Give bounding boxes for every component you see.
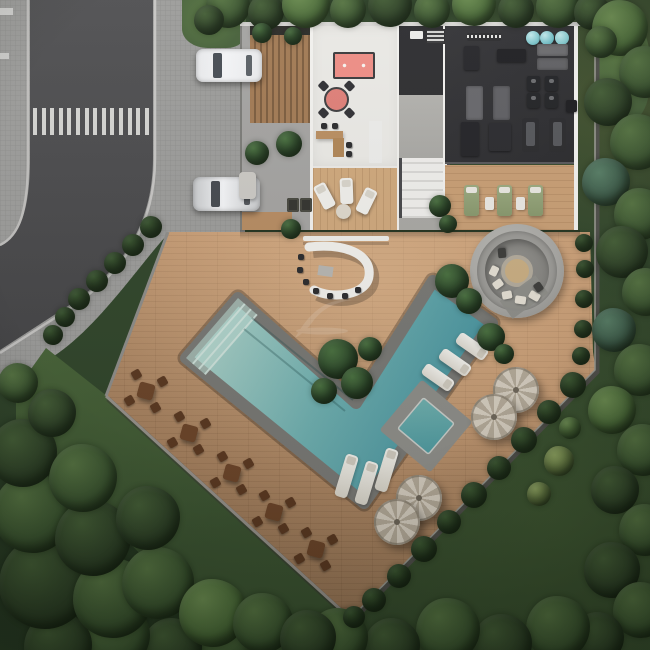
developer-watermark (295, 300, 352, 338)
site-plan-render (0, 0, 650, 650)
watermark-layer (0, 0, 650, 650)
